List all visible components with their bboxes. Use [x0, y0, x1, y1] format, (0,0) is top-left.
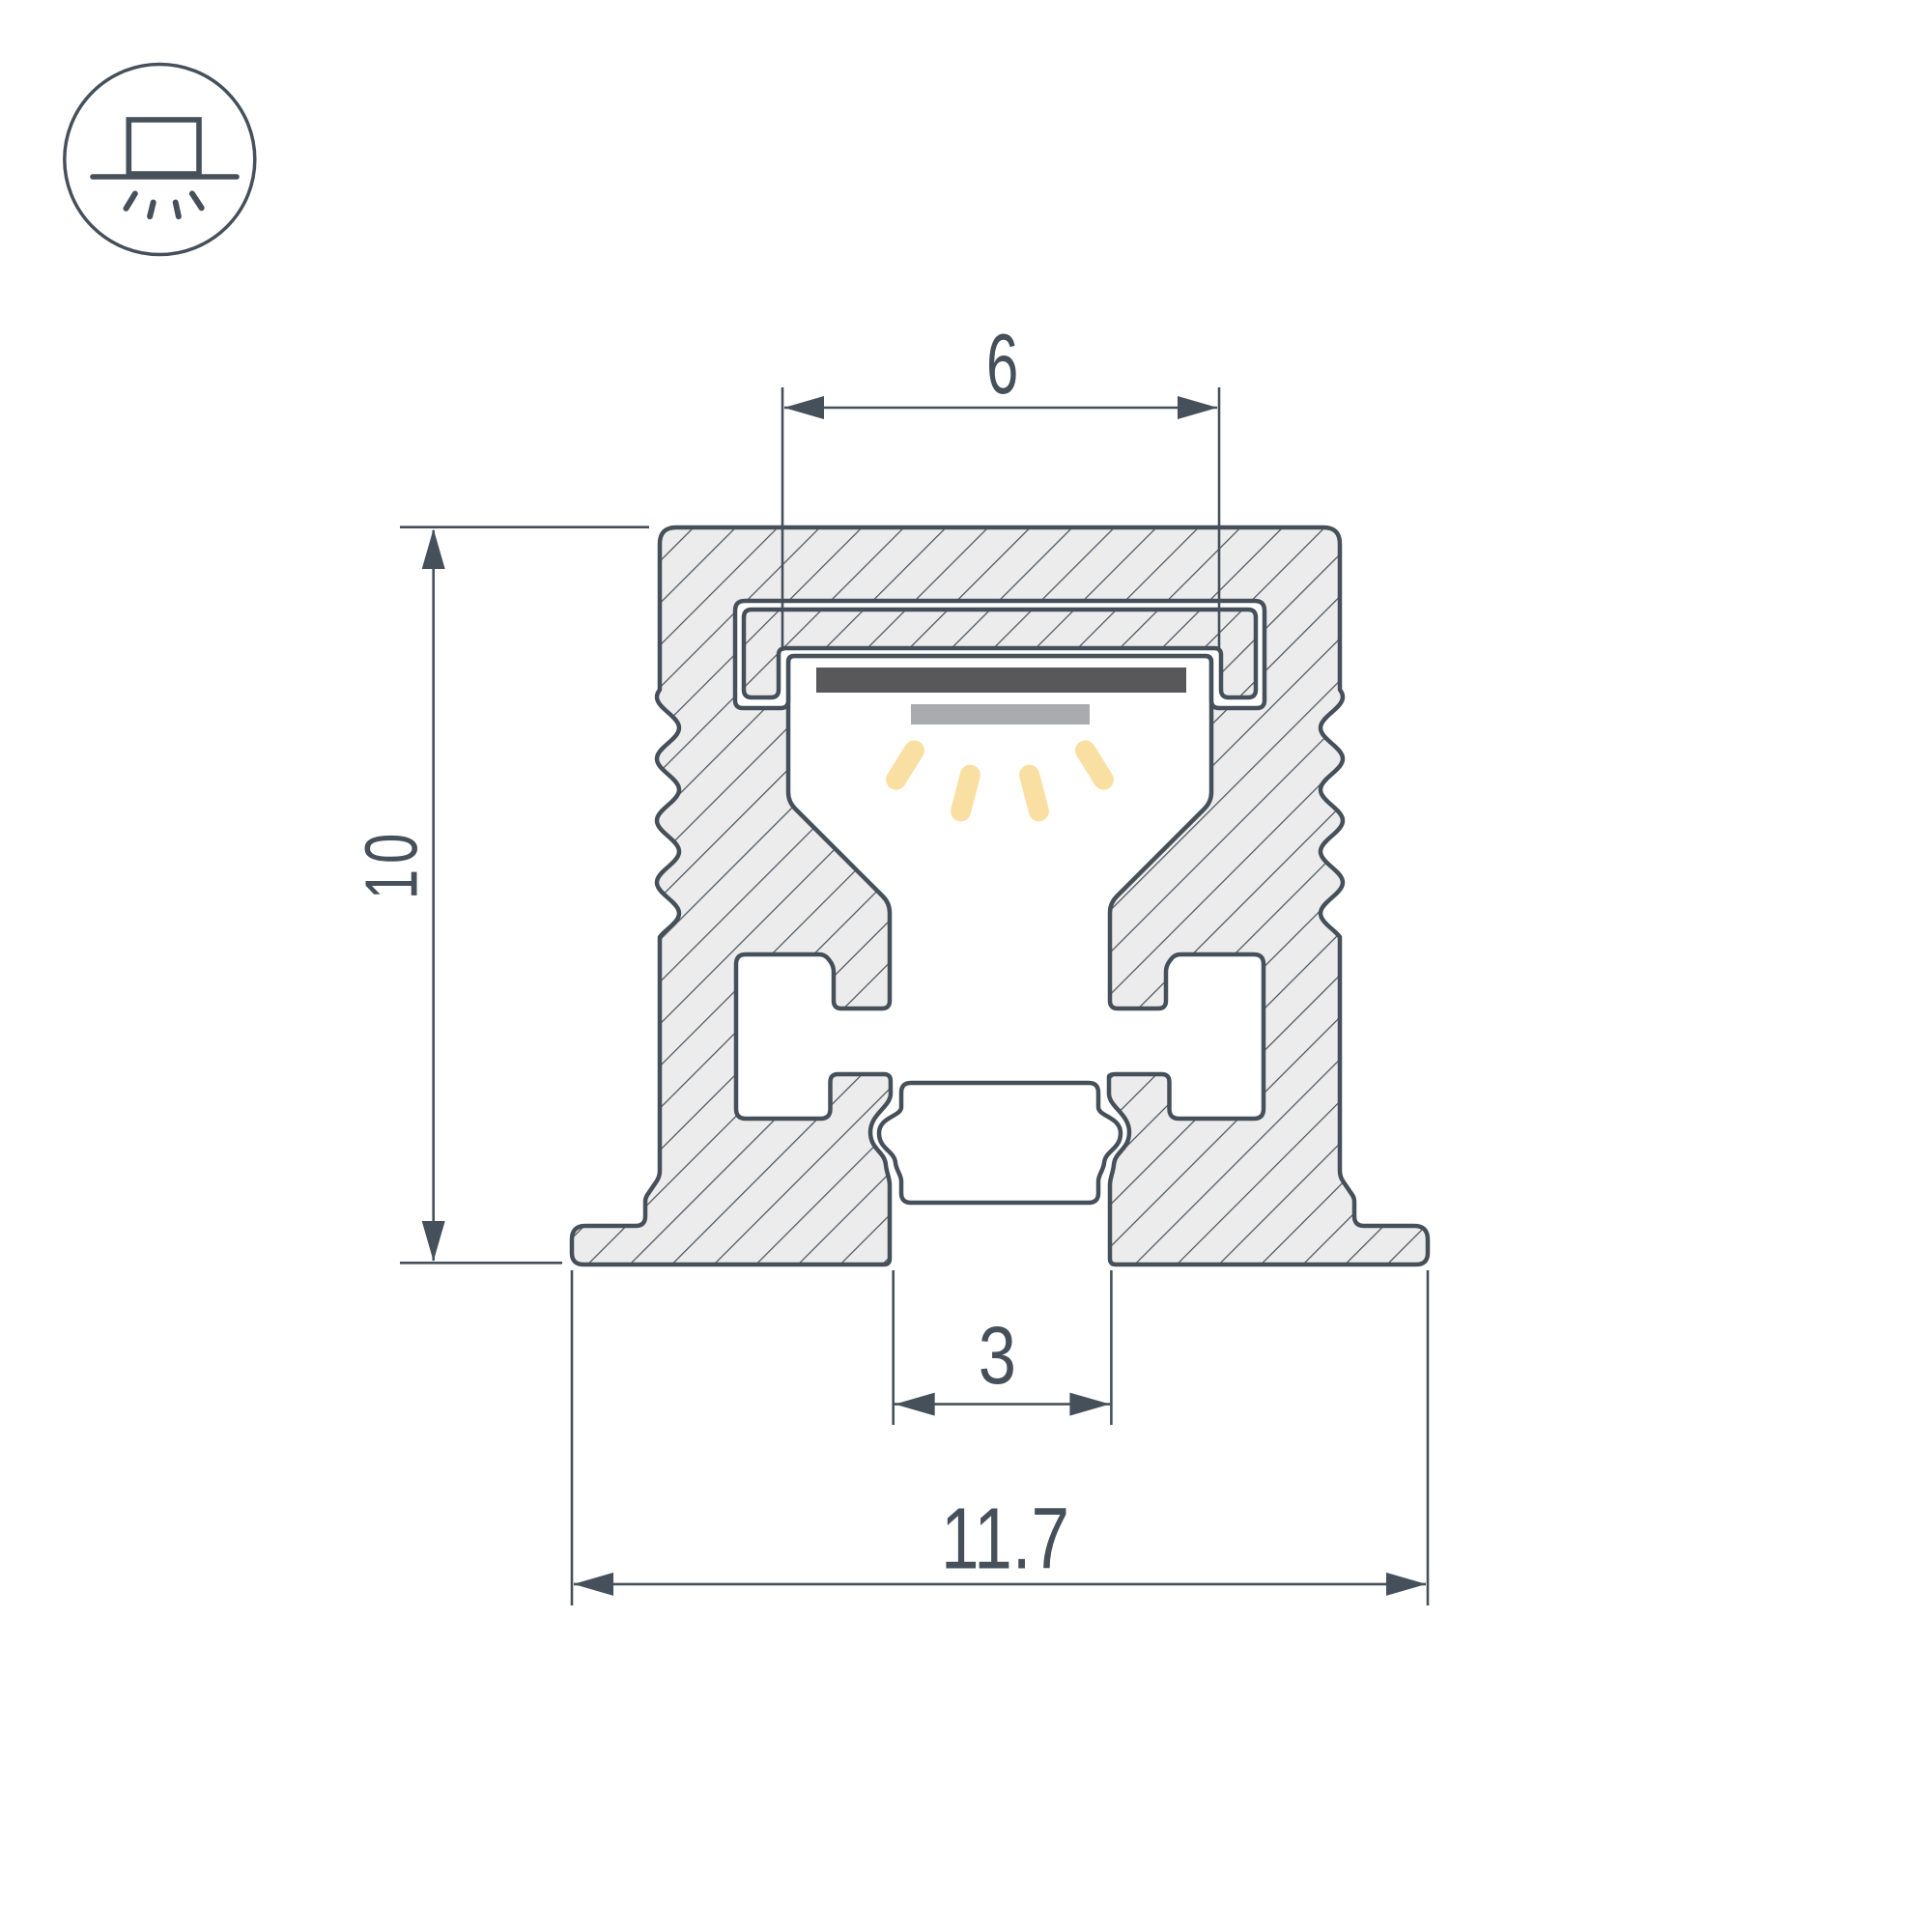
- svg-text:10: 10: [351, 828, 434, 899]
- svg-text:6: 6: [986, 316, 1018, 411]
- svg-text:11.7: 11.7: [941, 1492, 1069, 1588]
- svg-text:3: 3: [979, 1311, 1016, 1401]
